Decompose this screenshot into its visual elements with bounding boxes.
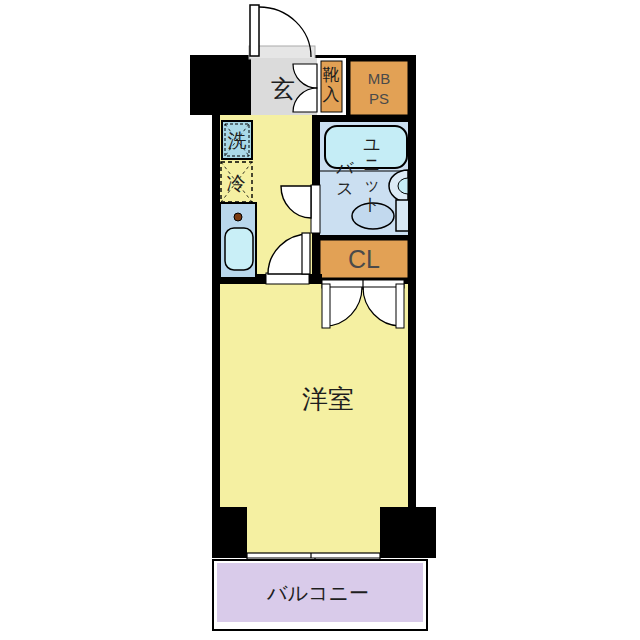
shoe-cabinet-label: 靴入: [323, 65, 340, 104]
unit-bath-label-right: ユニット: [363, 135, 380, 214]
wall-bath-top: [312, 115, 408, 122]
unit-bath-label-left: バス: [335, 159, 354, 198]
kitchen-sink: [225, 228, 253, 270]
main-room-label: 洋室: [302, 384, 354, 414]
pillar-bottom-left: [212, 507, 247, 558]
entrance-door-leaf: [250, 5, 259, 56]
room-door-leaf: [302, 233, 310, 274]
meter-box-label-line1: MB: [368, 70, 391, 87]
burner-dot: [234, 213, 242, 221]
meter-box-label-line2: PS: [369, 90, 389, 107]
fridge-label: 冷: [227, 173, 246, 194]
closet-door-left-leaf: [322, 284, 330, 328]
main-room-floor: [220, 282, 408, 556]
bath-door-sill: [311, 185, 320, 233]
wall-bath-bottom: [320, 235, 408, 240]
balcony-label: バルコニー: [266, 582, 369, 604]
pillar-bottom-right: [380, 507, 436, 558]
closet-label: CL: [348, 245, 380, 273]
toilet-tank: [396, 200, 409, 231]
floor-plan: 玄 靴入 MB PS 洗 冷 ユニット バス CL 洋室 バルコニー: [0, 0, 640, 640]
wall-left: [212, 115, 220, 558]
closet-door-right-leaf: [396, 284, 404, 328]
genkan-label: 玄: [271, 75, 295, 102]
washer-label: 洗: [228, 130, 247, 151]
